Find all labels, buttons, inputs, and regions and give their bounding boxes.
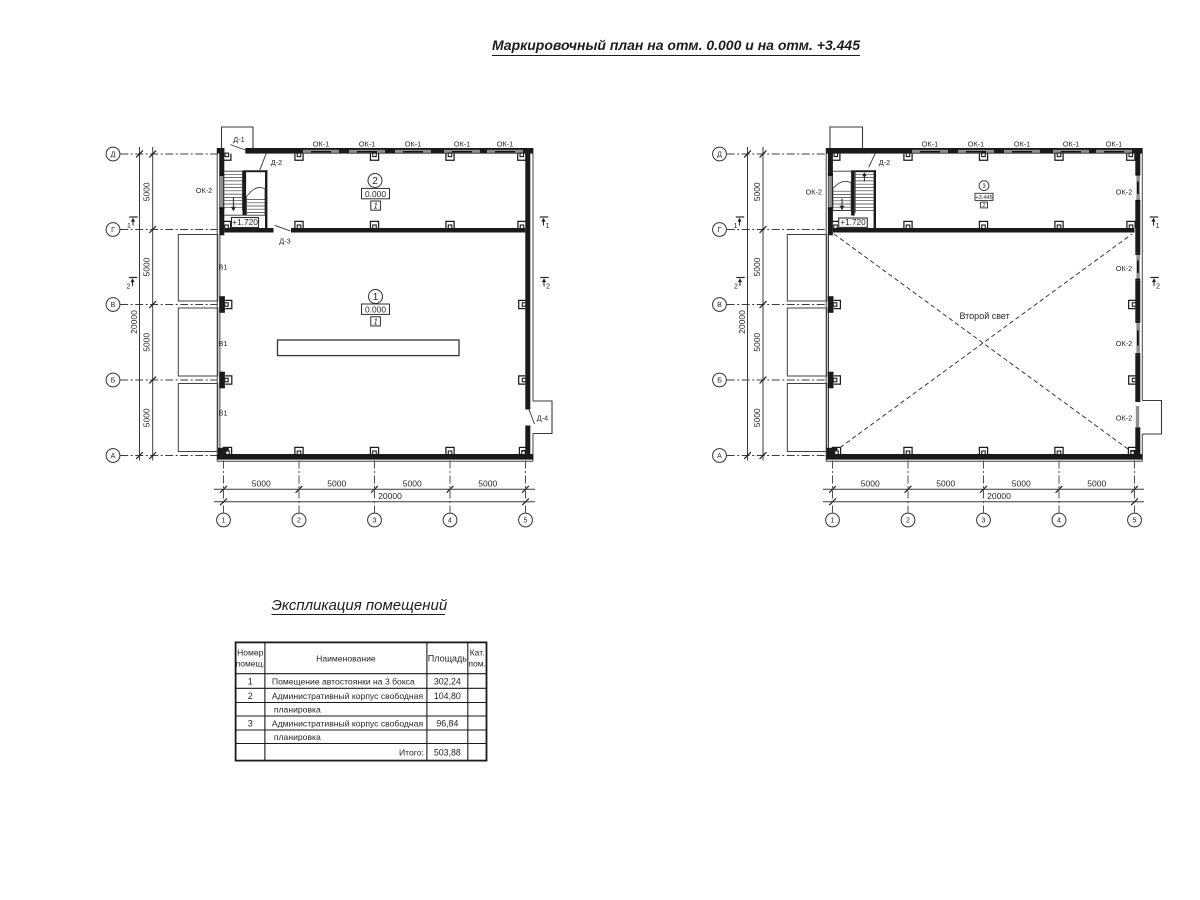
svg-text:планировка: планировка xyxy=(274,732,321,742)
svg-text:1: 1 xyxy=(373,292,379,303)
svg-text:96,84: 96,84 xyxy=(436,718,458,728)
svg-text:Административный корпус свобод: Административный корпус свободная xyxy=(272,718,424,728)
svg-text:ОК-2: ОК-2 xyxy=(1116,413,1132,422)
svg-text:5000: 5000 xyxy=(142,408,152,427)
svg-text:ОК-1: ОК-1 xyxy=(968,140,984,149)
svg-text:1: 1 xyxy=(222,518,226,525)
svg-text:5: 5 xyxy=(524,518,528,525)
svg-text:5000: 5000 xyxy=(752,333,762,352)
svg-text:2: 2 xyxy=(982,203,986,209)
svg-text:1: 1 xyxy=(248,676,253,686)
svg-text:20000: 20000 xyxy=(737,310,747,334)
svg-text:1: 1 xyxy=(1156,223,1160,230)
svg-text:ОК-1: ОК-1 xyxy=(1063,140,1079,149)
svg-text:3: 3 xyxy=(373,518,377,525)
svg-text:0.000: 0.000 xyxy=(365,189,386,199)
svg-text:Д: Д xyxy=(111,152,116,159)
svg-text:302,24: 302,24 xyxy=(434,676,461,686)
svg-text:А: А xyxy=(717,453,722,460)
svg-text:Площадь: Площадь xyxy=(428,654,467,664)
svg-text:Административный корпус свобод: Административный корпус свободная xyxy=(272,691,424,701)
svg-text:Д-4: Д-4 xyxy=(537,414,548,423)
svg-text:Г: Г xyxy=(111,227,115,234)
svg-text:5000: 5000 xyxy=(327,479,346,489)
svg-text:Наименование: Наименование xyxy=(316,654,376,664)
svg-text:ОК-1: ОК-1 xyxy=(454,140,470,149)
svg-text:В: В xyxy=(111,302,116,309)
svg-text:ОК-2: ОК-2 xyxy=(196,186,212,195)
svg-text:5000: 5000 xyxy=(252,479,271,489)
svg-text:В1: В1 xyxy=(219,409,228,418)
svg-text:5: 5 xyxy=(1133,518,1137,525)
svg-text:3: 3 xyxy=(248,718,253,728)
svg-text:А: А xyxy=(111,453,116,460)
svg-text:+1.720: +1.720 xyxy=(840,218,866,227)
svg-text:ОК-1: ОК-1 xyxy=(405,140,421,149)
svg-text:0.000: 0.000 xyxy=(365,305,386,315)
svg-text:5000: 5000 xyxy=(936,479,955,489)
svg-text:ОК-1: ОК-1 xyxy=(1106,140,1122,149)
svg-text:2: 2 xyxy=(546,284,550,291)
svg-text:2: 2 xyxy=(1156,284,1160,291)
svg-text:503,88: 503,88 xyxy=(434,747,461,757)
svg-text:4: 4 xyxy=(448,518,452,525)
svg-text:В1: В1 xyxy=(219,339,228,348)
svg-text:1: 1 xyxy=(127,223,131,230)
svg-text:5000: 5000 xyxy=(752,257,762,276)
svg-text:2: 2 xyxy=(734,284,738,291)
svg-text:2: 2 xyxy=(248,691,253,701)
svg-text:ОК-2: ОК-2 xyxy=(1116,187,1132,196)
svg-text:ОК-1: ОК-1 xyxy=(1014,140,1030,149)
svg-text:пом.: пом. xyxy=(468,659,486,669)
svg-text:5000: 5000 xyxy=(142,182,152,201)
svg-text:планировка: планировка xyxy=(274,705,321,715)
svg-text:помещ.: помещ. xyxy=(236,659,265,669)
svg-text:2: 2 xyxy=(126,284,130,291)
svg-text:ОК-1: ОК-1 xyxy=(313,140,329,149)
svg-text:Д-2: Д-2 xyxy=(271,158,282,167)
svg-text:ОК-2: ОК-2 xyxy=(1116,264,1132,273)
svg-text:1: 1 xyxy=(831,518,835,525)
svg-text:1: 1 xyxy=(546,223,550,230)
svg-text:5000: 5000 xyxy=(1087,479,1106,489)
svg-text:5000: 5000 xyxy=(861,479,880,489)
svg-text:Итого:: Итого: xyxy=(399,747,424,757)
svg-text:1: 1 xyxy=(733,223,737,230)
svg-text:Б: Б xyxy=(717,378,722,385)
svg-text:+1.720: +1.720 xyxy=(232,217,258,227)
svg-text:5000: 5000 xyxy=(1012,479,1031,489)
svg-text:ОК-1: ОК-1 xyxy=(497,140,513,149)
svg-text:5000: 5000 xyxy=(403,479,422,489)
svg-text:+3.445: +3.445 xyxy=(975,195,992,201)
svg-text:ОК-1: ОК-1 xyxy=(922,140,938,149)
svg-text:20000: 20000 xyxy=(129,310,139,334)
svg-text:20000: 20000 xyxy=(378,491,402,501)
svg-text:1: 1 xyxy=(373,317,377,326)
svg-text:2: 2 xyxy=(906,518,910,525)
svg-text:2: 2 xyxy=(297,518,301,525)
svg-text:Д-1: Д-1 xyxy=(233,135,244,144)
svg-text:2: 2 xyxy=(372,176,378,187)
svg-text:ОК-2: ОК-2 xyxy=(806,187,822,196)
svg-text:ОК-2: ОК-2 xyxy=(1116,339,1132,348)
svg-text:5000: 5000 xyxy=(752,408,762,427)
svg-text:Маркировочный план на отм. 0.0: Маркировочный план на отм. 0.000 и на от… xyxy=(492,37,860,53)
svg-text:В: В xyxy=(717,302,722,309)
svg-text:4: 4 xyxy=(1057,518,1061,525)
svg-text:3: 3 xyxy=(982,518,986,525)
svg-text:Номер: Номер xyxy=(237,648,263,658)
svg-text:В1: В1 xyxy=(219,263,228,272)
svg-text:20000: 20000 xyxy=(987,491,1011,501)
svg-text:Г: Г xyxy=(718,227,722,234)
svg-text:Помещение автостоянки на 3 бок: Помещение автостоянки на 3 бокса xyxy=(272,676,415,686)
svg-text:5000: 5000 xyxy=(478,479,497,489)
svg-text:Д-3: Д-3 xyxy=(279,236,290,245)
svg-text:Д-2: Д-2 xyxy=(879,158,890,167)
svg-text:104,80: 104,80 xyxy=(434,691,461,701)
svg-text:Б: Б xyxy=(111,378,116,385)
svg-text:Д: Д xyxy=(717,152,722,159)
svg-text:5000: 5000 xyxy=(142,333,152,352)
svg-text:Кат.: Кат. xyxy=(470,648,485,658)
svg-text:1: 1 xyxy=(373,202,377,211)
svg-text:Экспликация помещений: Экспликация помещений xyxy=(272,597,448,614)
svg-text:5000: 5000 xyxy=(142,257,152,276)
svg-text:Второй свет: Второй свет xyxy=(959,311,1009,321)
svg-text:ОК-1: ОК-1 xyxy=(359,140,375,149)
svg-text:5000: 5000 xyxy=(752,182,762,201)
